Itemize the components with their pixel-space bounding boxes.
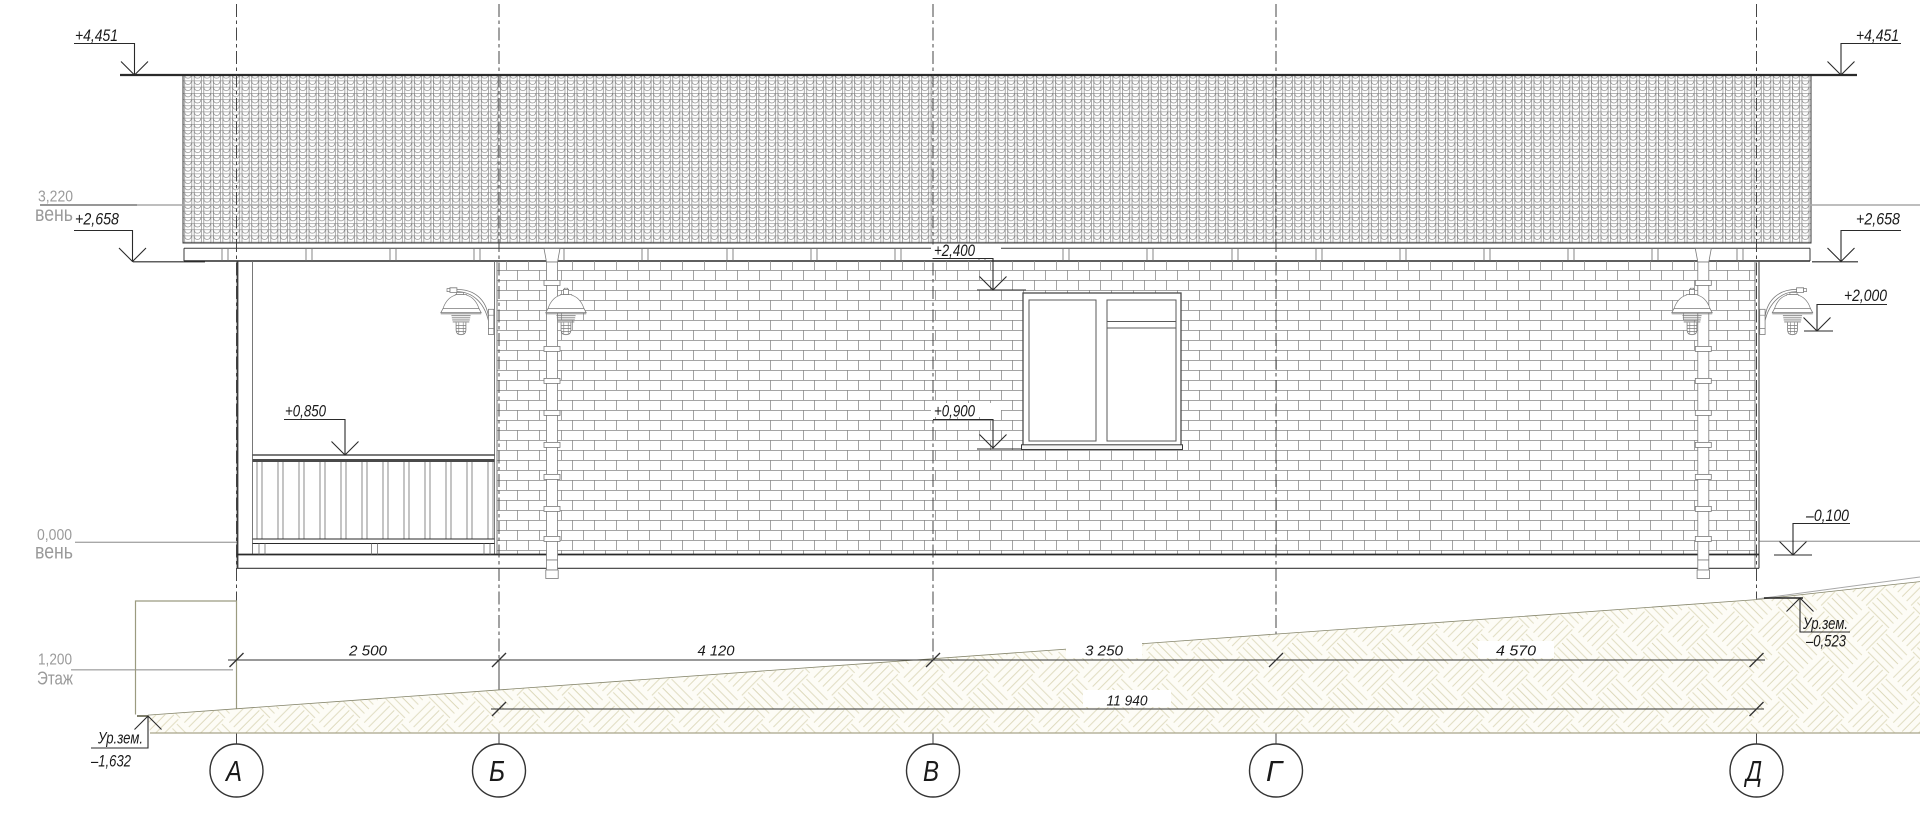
svg-text:+4,451: +4,451 bbox=[1856, 26, 1899, 45]
svg-text:–0,523: –0,523 bbox=[1805, 632, 1846, 651]
svg-text:+2,000: +2,000 bbox=[1844, 286, 1887, 305]
svg-text:+4,451: +4,451 bbox=[75, 26, 118, 45]
svg-text:Ур.зем.: Ур.зем. bbox=[1802, 614, 1848, 633]
svg-text:+2,658: +2,658 bbox=[1856, 210, 1900, 229]
svg-text:+2,658: +2,658 bbox=[75, 210, 119, 229]
svg-text:2 500: 2 500 bbox=[348, 644, 387, 660]
svg-text:Д: Д bbox=[1744, 756, 1762, 788]
svg-text:–0,100: –0,100 bbox=[1805, 506, 1849, 525]
svg-text:4 120: 4 120 bbox=[698, 644, 735, 660]
svg-text:А: А bbox=[224, 756, 242, 788]
svg-text:вень: вень bbox=[35, 541, 73, 564]
svg-text:3 250: 3 250 bbox=[1085, 644, 1123, 660]
svg-text:Ур.зем.: Ур.зем. bbox=[97, 729, 143, 748]
svg-text:1,200: 1,200 bbox=[38, 652, 72, 669]
svg-text:4 570: 4 570 bbox=[1496, 644, 1536, 660]
svg-text:Этаж: Этаж bbox=[37, 669, 73, 689]
svg-text:+2,400: +2,400 bbox=[934, 241, 975, 260]
svg-text:Б: Б bbox=[489, 756, 505, 788]
svg-text:+0,900: +0,900 bbox=[934, 402, 975, 421]
svg-text:Г: Г bbox=[1266, 756, 1284, 788]
svg-text:вень: вень bbox=[35, 203, 73, 226]
svg-text:–1,632: –1,632 bbox=[90, 752, 131, 771]
svg-text:В: В bbox=[923, 756, 939, 788]
svg-text:11 940: 11 940 bbox=[1107, 694, 1148, 710]
svg-text:+0,850: +0,850 bbox=[285, 402, 326, 421]
